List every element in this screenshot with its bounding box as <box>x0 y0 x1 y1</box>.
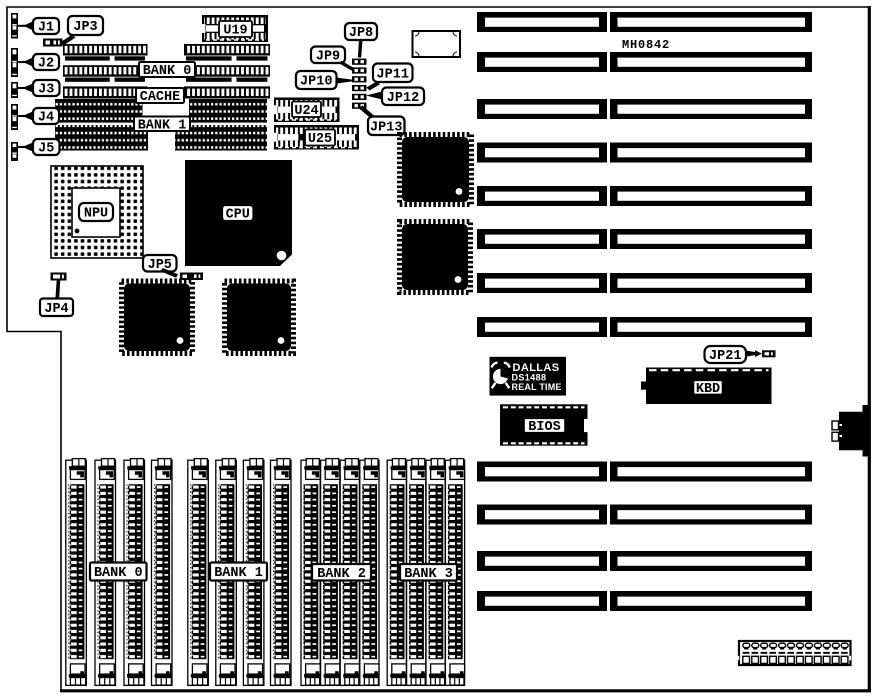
svg-text:J2: J2 <box>38 57 54 72</box>
svg-text:JP10: JP10 <box>300 75 332 90</box>
svg-text:BANK 0: BANK 0 <box>94 566 143 581</box>
svg-text:JP21: JP21 <box>709 349 741 364</box>
svg-text:J4: J4 <box>38 111 54 126</box>
svg-text:J1: J1 <box>38 21 54 36</box>
svg-text:J5: J5 <box>38 142 54 157</box>
svg-text:CPU: CPU <box>226 208 250 223</box>
svg-text:KBD: KBD <box>696 382 720 397</box>
svg-text:U19: U19 <box>223 24 247 39</box>
svg-text:BANK 3: BANK 3 <box>404 567 453 582</box>
svg-text:NPU: NPU <box>84 207 108 222</box>
svg-text:DS1488: DS1488 <box>512 372 547 382</box>
svg-text:JP4: JP4 <box>44 302 68 317</box>
svg-text:BANK 1: BANK 1 <box>214 566 263 581</box>
svg-text:JP8: JP8 <box>349 26 373 41</box>
svg-text:BIOS: BIOS <box>528 420 560 435</box>
svg-text:BANK 0: BANK 0 <box>143 64 192 79</box>
svg-text:MH0842: MH0842 <box>622 38 670 52</box>
svg-text:REAL TIME: REAL TIME <box>512 382 562 392</box>
svg-text:U24: U24 <box>294 104 318 119</box>
svg-text:BANK 1: BANK 1 <box>138 118 187 133</box>
svg-text:J3: J3 <box>38 83 54 98</box>
svg-text:JP12: JP12 <box>387 91 419 106</box>
svg-text:JP11: JP11 <box>377 67 409 82</box>
svg-text:BANK 2: BANK 2 <box>317 567 366 582</box>
svg-text:U25: U25 <box>308 132 332 147</box>
svg-text:CACHE: CACHE <box>140 90 181 105</box>
svg-text:JP9: JP9 <box>316 49 340 64</box>
svg-text:JP3: JP3 <box>73 20 97 35</box>
